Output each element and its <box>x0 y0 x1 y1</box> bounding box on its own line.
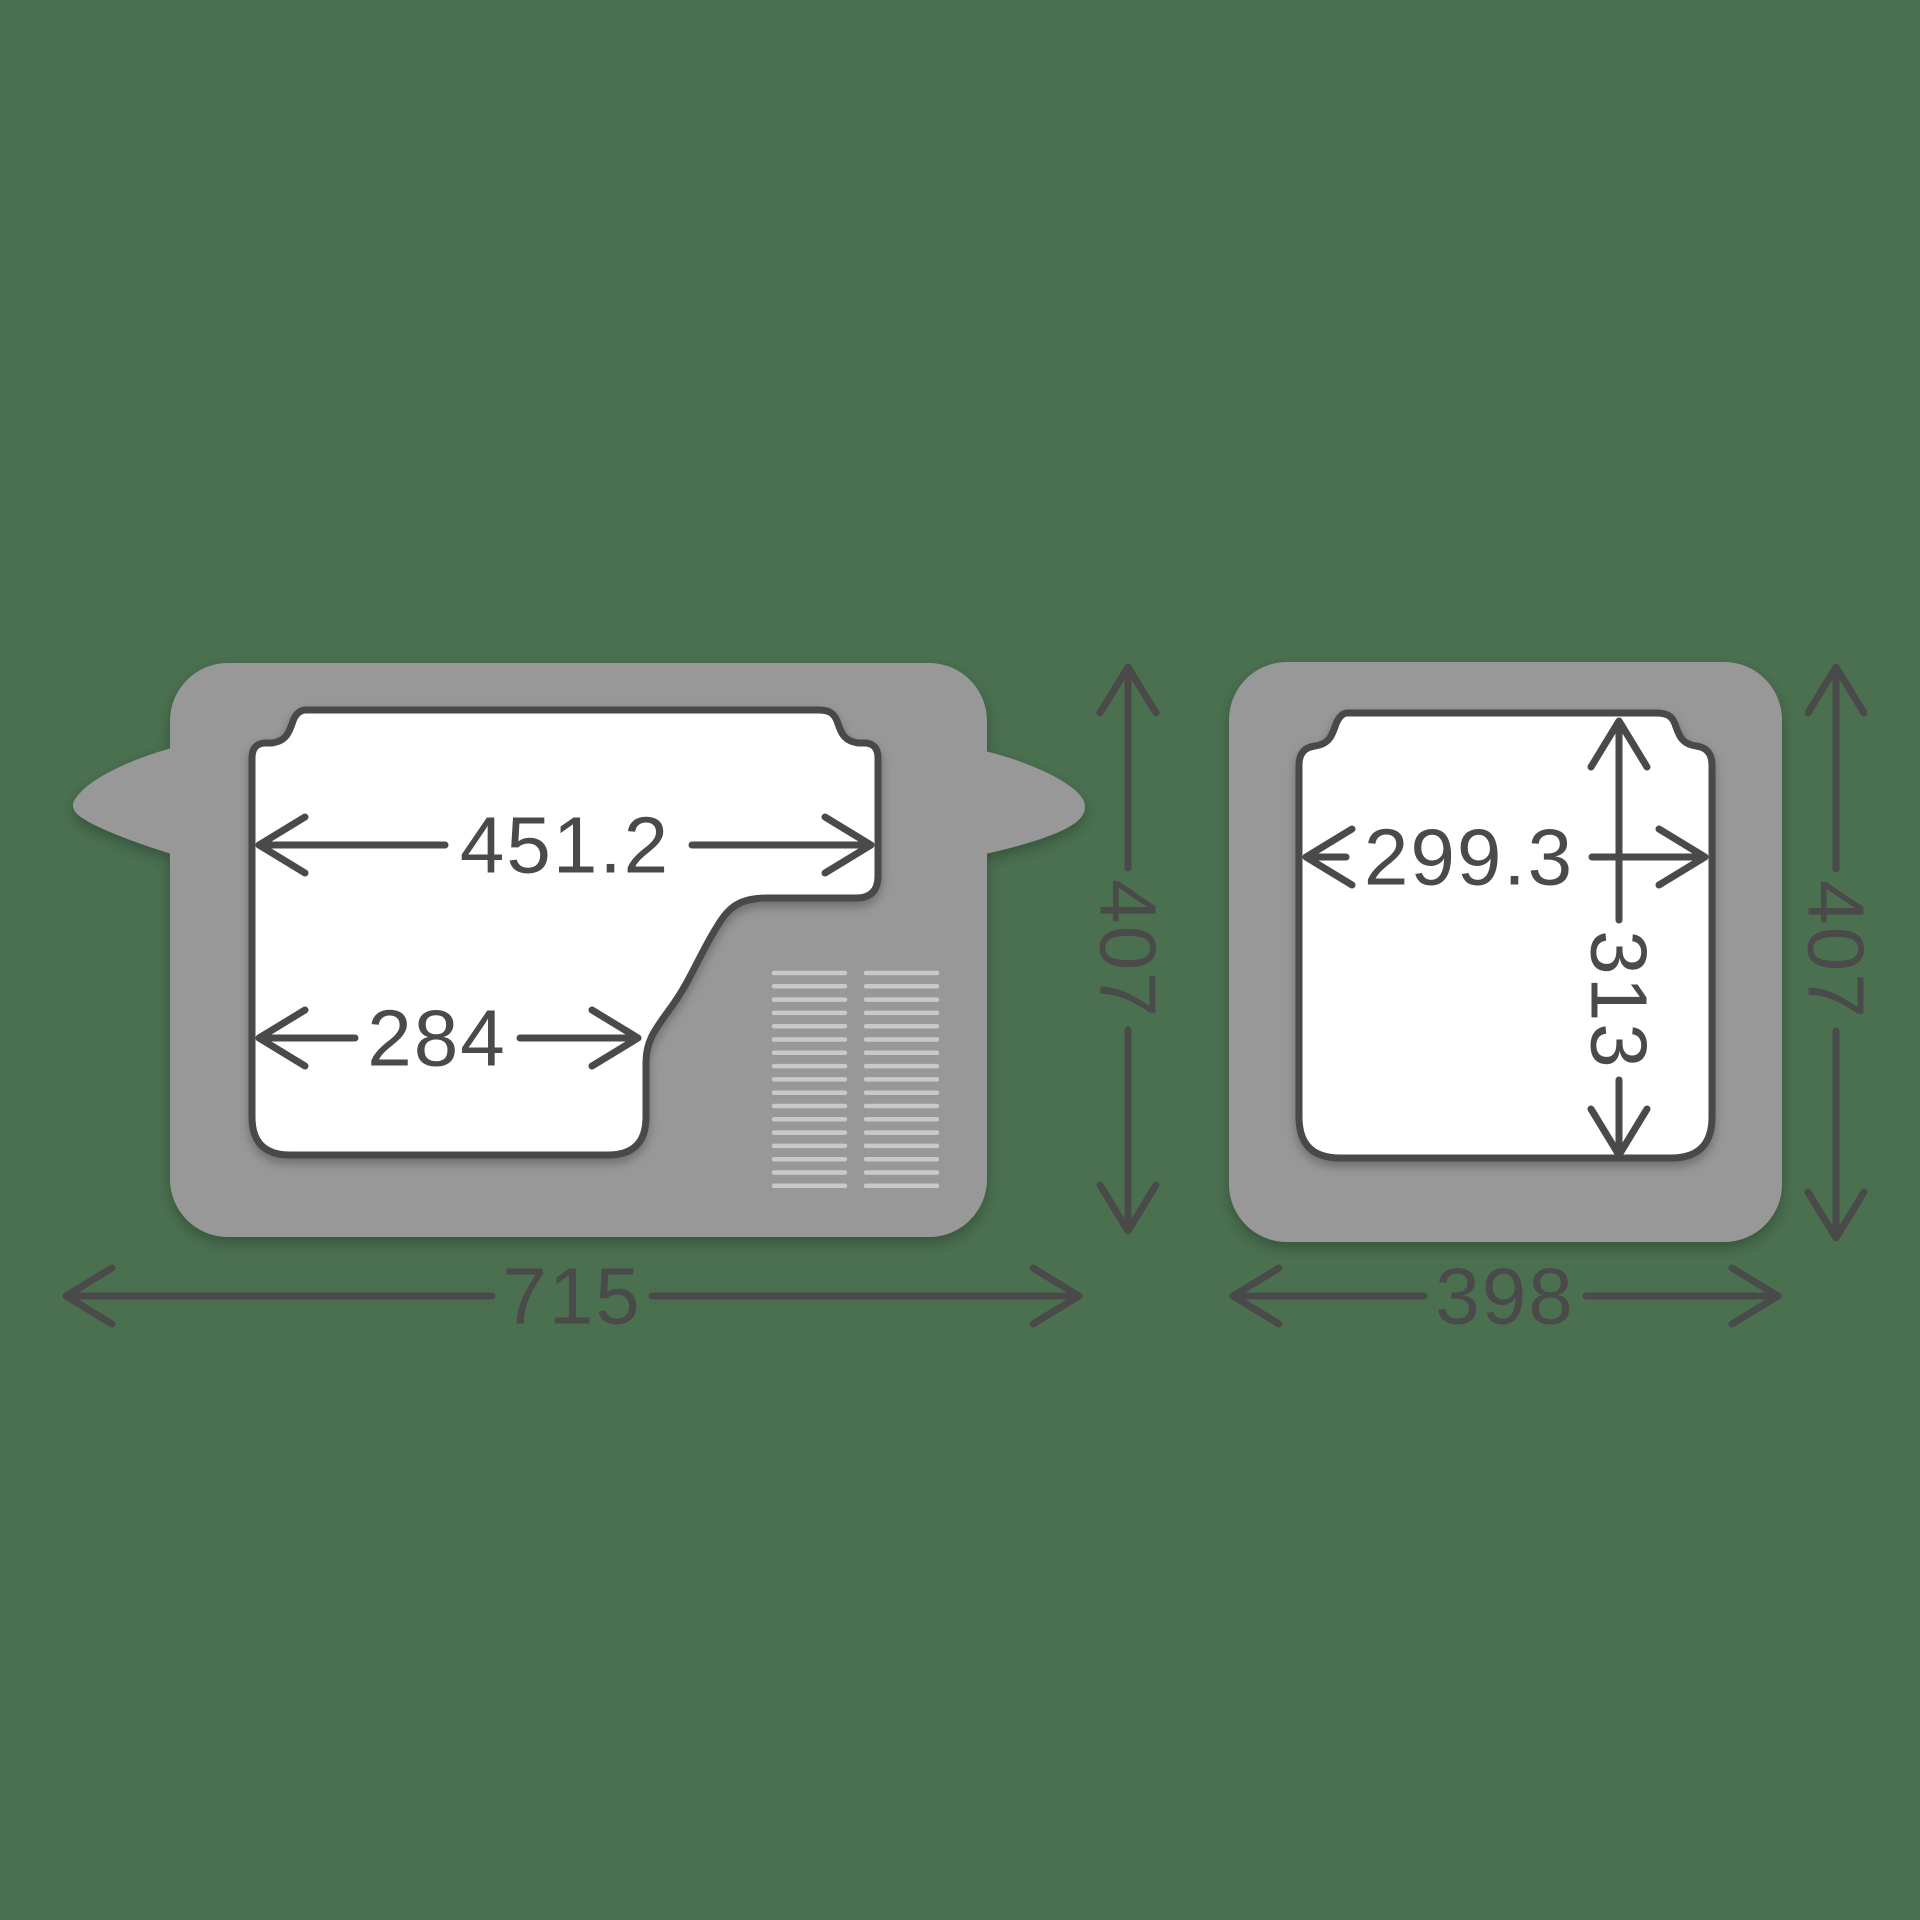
dim-label-side-overall-width: 715 <box>502 1252 641 1341</box>
dim-label-front-overall-width: 398 <box>1435 1252 1574 1341</box>
dimension-diagram: 451.2 284 715 407 <box>0 0 1920 1920</box>
dim-label-side-inner-bottom-width: 284 <box>367 994 506 1083</box>
dim-label-front-inner-height: 313 <box>1575 930 1664 1069</box>
dim-label-front-overall-height: 407 <box>1792 880 1881 1019</box>
dim-label-front-inner-width: 299.3 <box>1364 813 1574 902</box>
dim-label-side-inner-top-width: 451.2 <box>460 801 670 890</box>
dim-label-side-overall-height: 407 <box>1084 879 1173 1018</box>
